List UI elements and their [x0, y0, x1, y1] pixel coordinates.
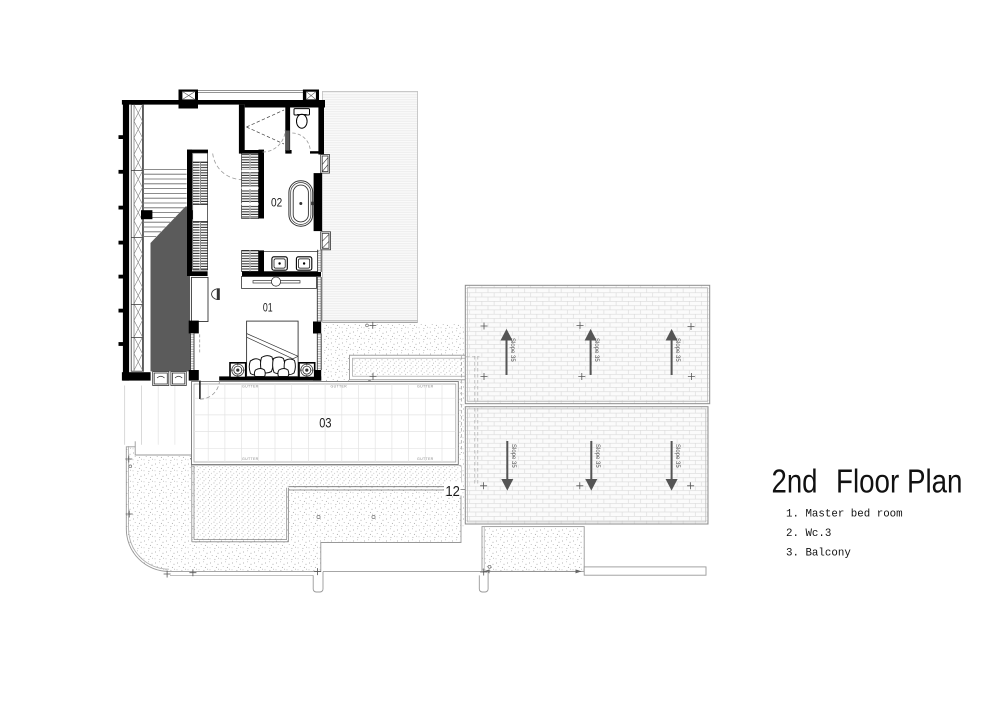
svg-text:GUTTER: GUTTER	[417, 457, 434, 461]
svg-text:2nd: 2nd	[772, 463, 818, 500]
svg-text:03: 03	[319, 414, 331, 430]
svg-text:Slope 35: Slope 35	[593, 338, 599, 362]
svg-text:GUTTER: GUTTER	[242, 457, 259, 461]
svg-text:Floor Plan: Floor Plan	[836, 463, 963, 500]
svg-text:GUTTER: GUTTER	[417, 385, 434, 389]
svg-text:01: 01	[263, 300, 273, 314]
svg-text:Slope 35: Slope 35	[674, 338, 680, 362]
svg-text:GUTTER: GUTTER	[331, 385, 348, 389]
svg-text:12: 12	[445, 483, 460, 500]
svg-text:1. Master bed room: 1. Master bed room	[786, 509, 903, 521]
svg-text:02: 02	[271, 196, 282, 210]
svg-text:GUTTER: GUTTER	[242, 385, 259, 389]
svg-text:Slope 35: Slope 35	[509, 338, 515, 362]
svg-text:Slope 35: Slope 35	[510, 444, 516, 468]
svg-text:3. Balcony: 3. Balcony	[786, 548, 851, 560]
svg-text:2. Wc.3: 2. Wc.3	[786, 528, 831, 540]
svg-text:Slope 35: Slope 35	[674, 444, 680, 468]
svg-text:Slope 35: Slope 35	[594, 444, 600, 468]
